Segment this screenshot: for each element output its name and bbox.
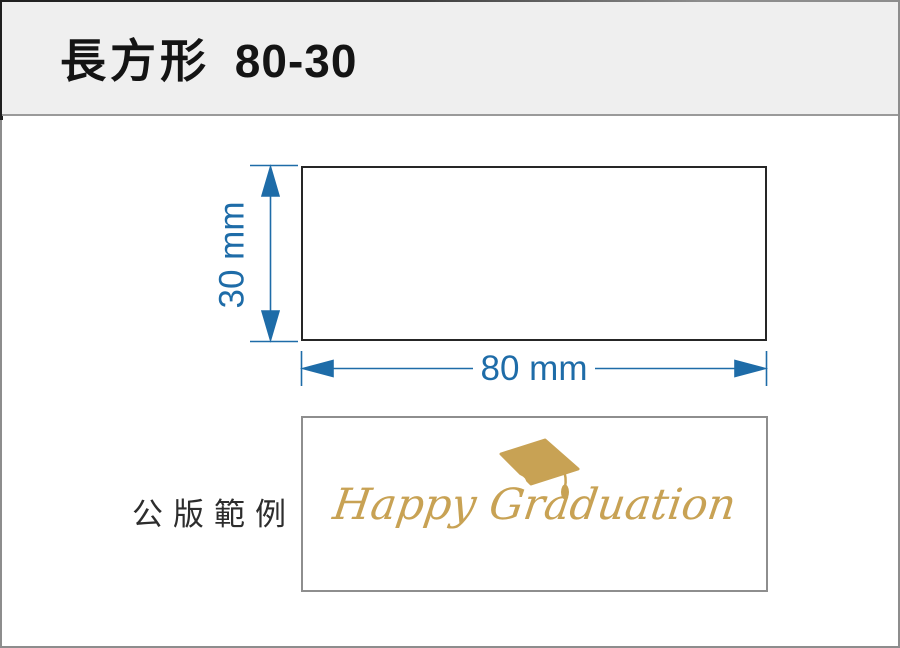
width-dimension-label: 80 mm	[459, 349, 609, 389]
header-band: 長方形 80-30	[2, 2, 898, 116]
size-code: 80-30	[235, 35, 358, 87]
sample-stamp-box: Happy Graduation	[301, 416, 768, 592]
arrow-up-icon	[262, 167, 279, 196]
arrow-left-icon	[303, 361, 333, 377]
page-title: 長方形 80-30	[60, 25, 357, 91]
spec-sheet-page: 長方形 80-30 30 mm 80 mm 公版範例	[0, 0, 900, 648]
height-dimension-label: 30 mm	[214, 183, 252, 328]
sample-message-text: Happy Graduation	[299, 480, 769, 530]
arrow-down-icon	[262, 311, 279, 340]
shape-name: 長方形	[60, 34, 210, 88]
sample-caption: 公版範例	[132, 489, 296, 534]
arrow-right-icon	[735, 361, 765, 377]
product-outline-rect	[301, 166, 767, 341]
